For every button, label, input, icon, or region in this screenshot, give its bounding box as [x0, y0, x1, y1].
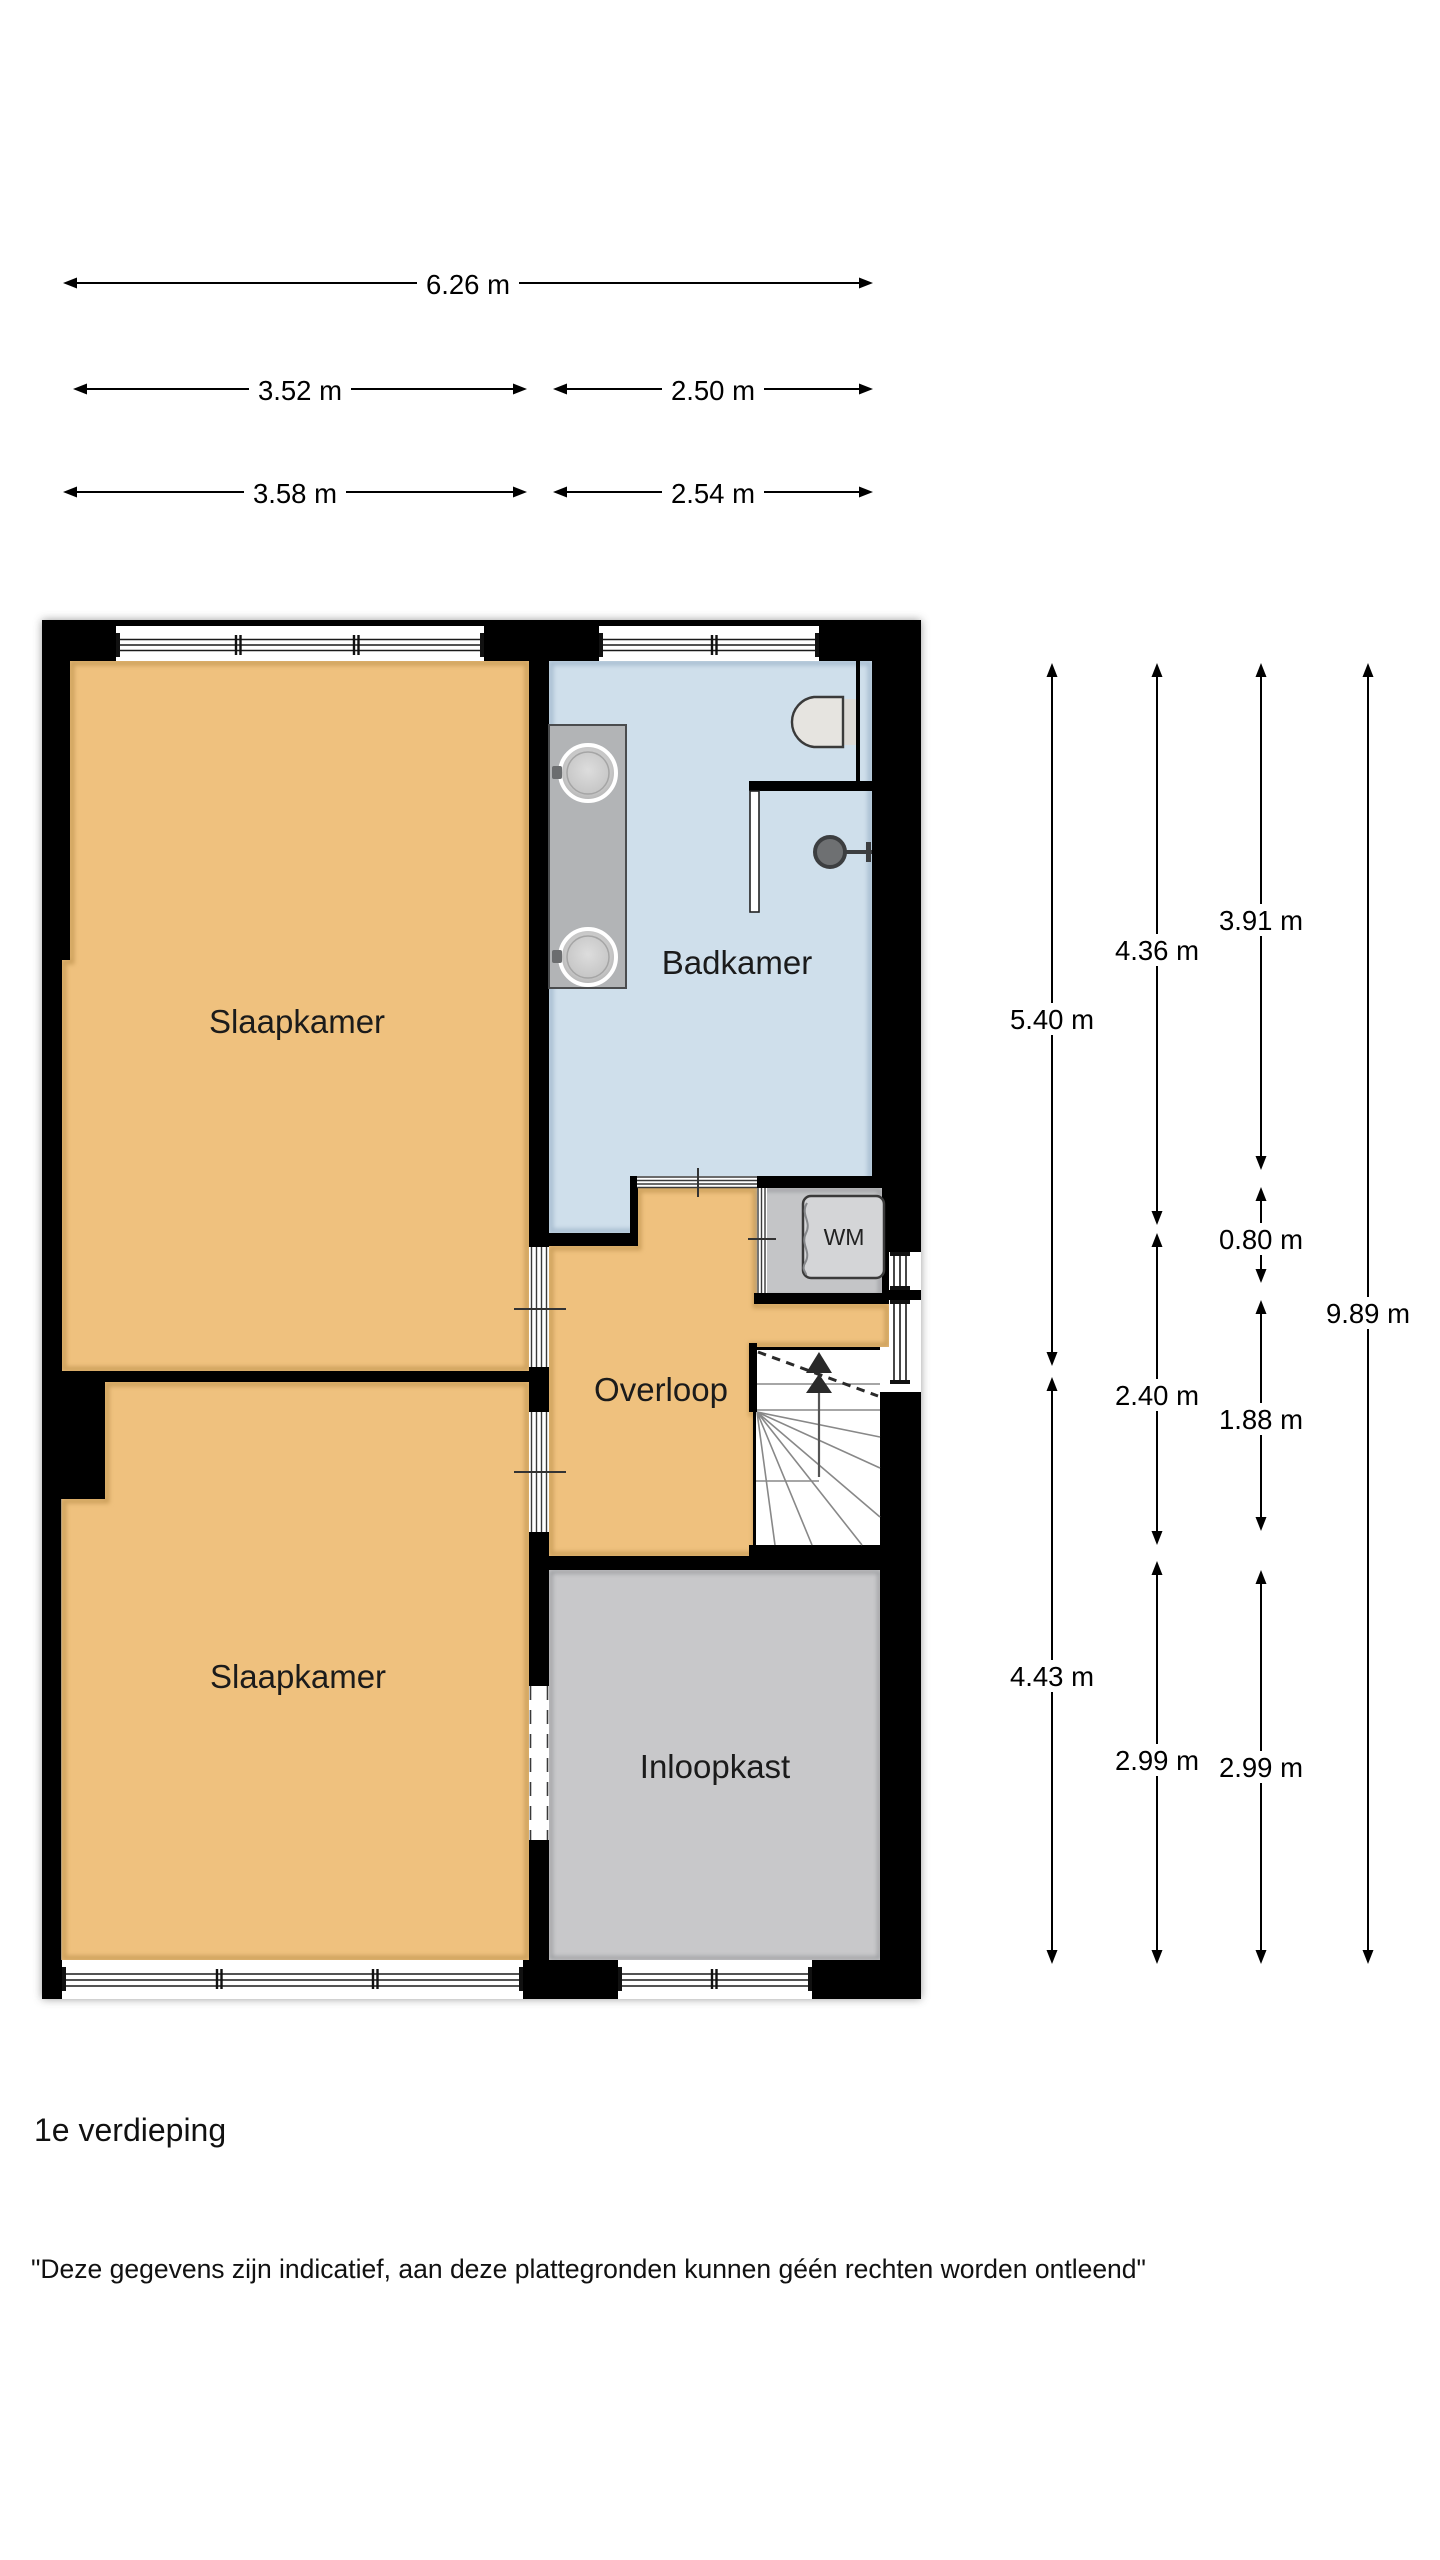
svg-text:2.99 m: 2.99 m — [1219, 1752, 1303, 1783]
svg-text:4.43 m: 4.43 m — [1010, 1661, 1094, 1692]
svg-text:6.26 m: 6.26 m — [426, 269, 510, 300]
svg-text:2.99 m: 2.99 m — [1115, 1745, 1199, 1776]
svg-text:3.58 m: 3.58 m — [253, 478, 337, 509]
svg-text:Slaapkamer: Slaapkamer — [209, 1003, 385, 1040]
svg-text:2.54 m: 2.54 m — [671, 478, 755, 509]
svg-text:3.91 m: 3.91 m — [1219, 905, 1303, 936]
svg-text:0.80 m: 0.80 m — [1219, 1224, 1303, 1255]
svg-text:Overloop: Overloop — [594, 1371, 728, 1408]
svg-text:Slaapkamer: Slaapkamer — [210, 1658, 386, 1695]
svg-text:WM: WM — [824, 1224, 865, 1250]
svg-text:"Deze gegevens zijn indicatief: "Deze gegevens zijn indicatief, aan deze… — [31, 2254, 1146, 2284]
svg-text:3.52 m: 3.52 m — [258, 375, 342, 406]
svg-text:Inloopkast: Inloopkast — [640, 1748, 790, 1785]
svg-text:9.89 m: 9.89 m — [1326, 1298, 1410, 1329]
svg-text:1.88 m: 1.88 m — [1219, 1404, 1303, 1435]
svg-text:2.50 m: 2.50 m — [671, 375, 755, 406]
svg-text:4.36 m: 4.36 m — [1115, 935, 1199, 966]
svg-text:1e verdieping: 1e verdieping — [34, 2112, 226, 2148]
svg-text:2.40 m: 2.40 m — [1115, 1380, 1199, 1411]
svg-text:5.40 m: 5.40 m — [1010, 1004, 1094, 1035]
svg-text:Badkamer: Badkamer — [662, 944, 812, 981]
